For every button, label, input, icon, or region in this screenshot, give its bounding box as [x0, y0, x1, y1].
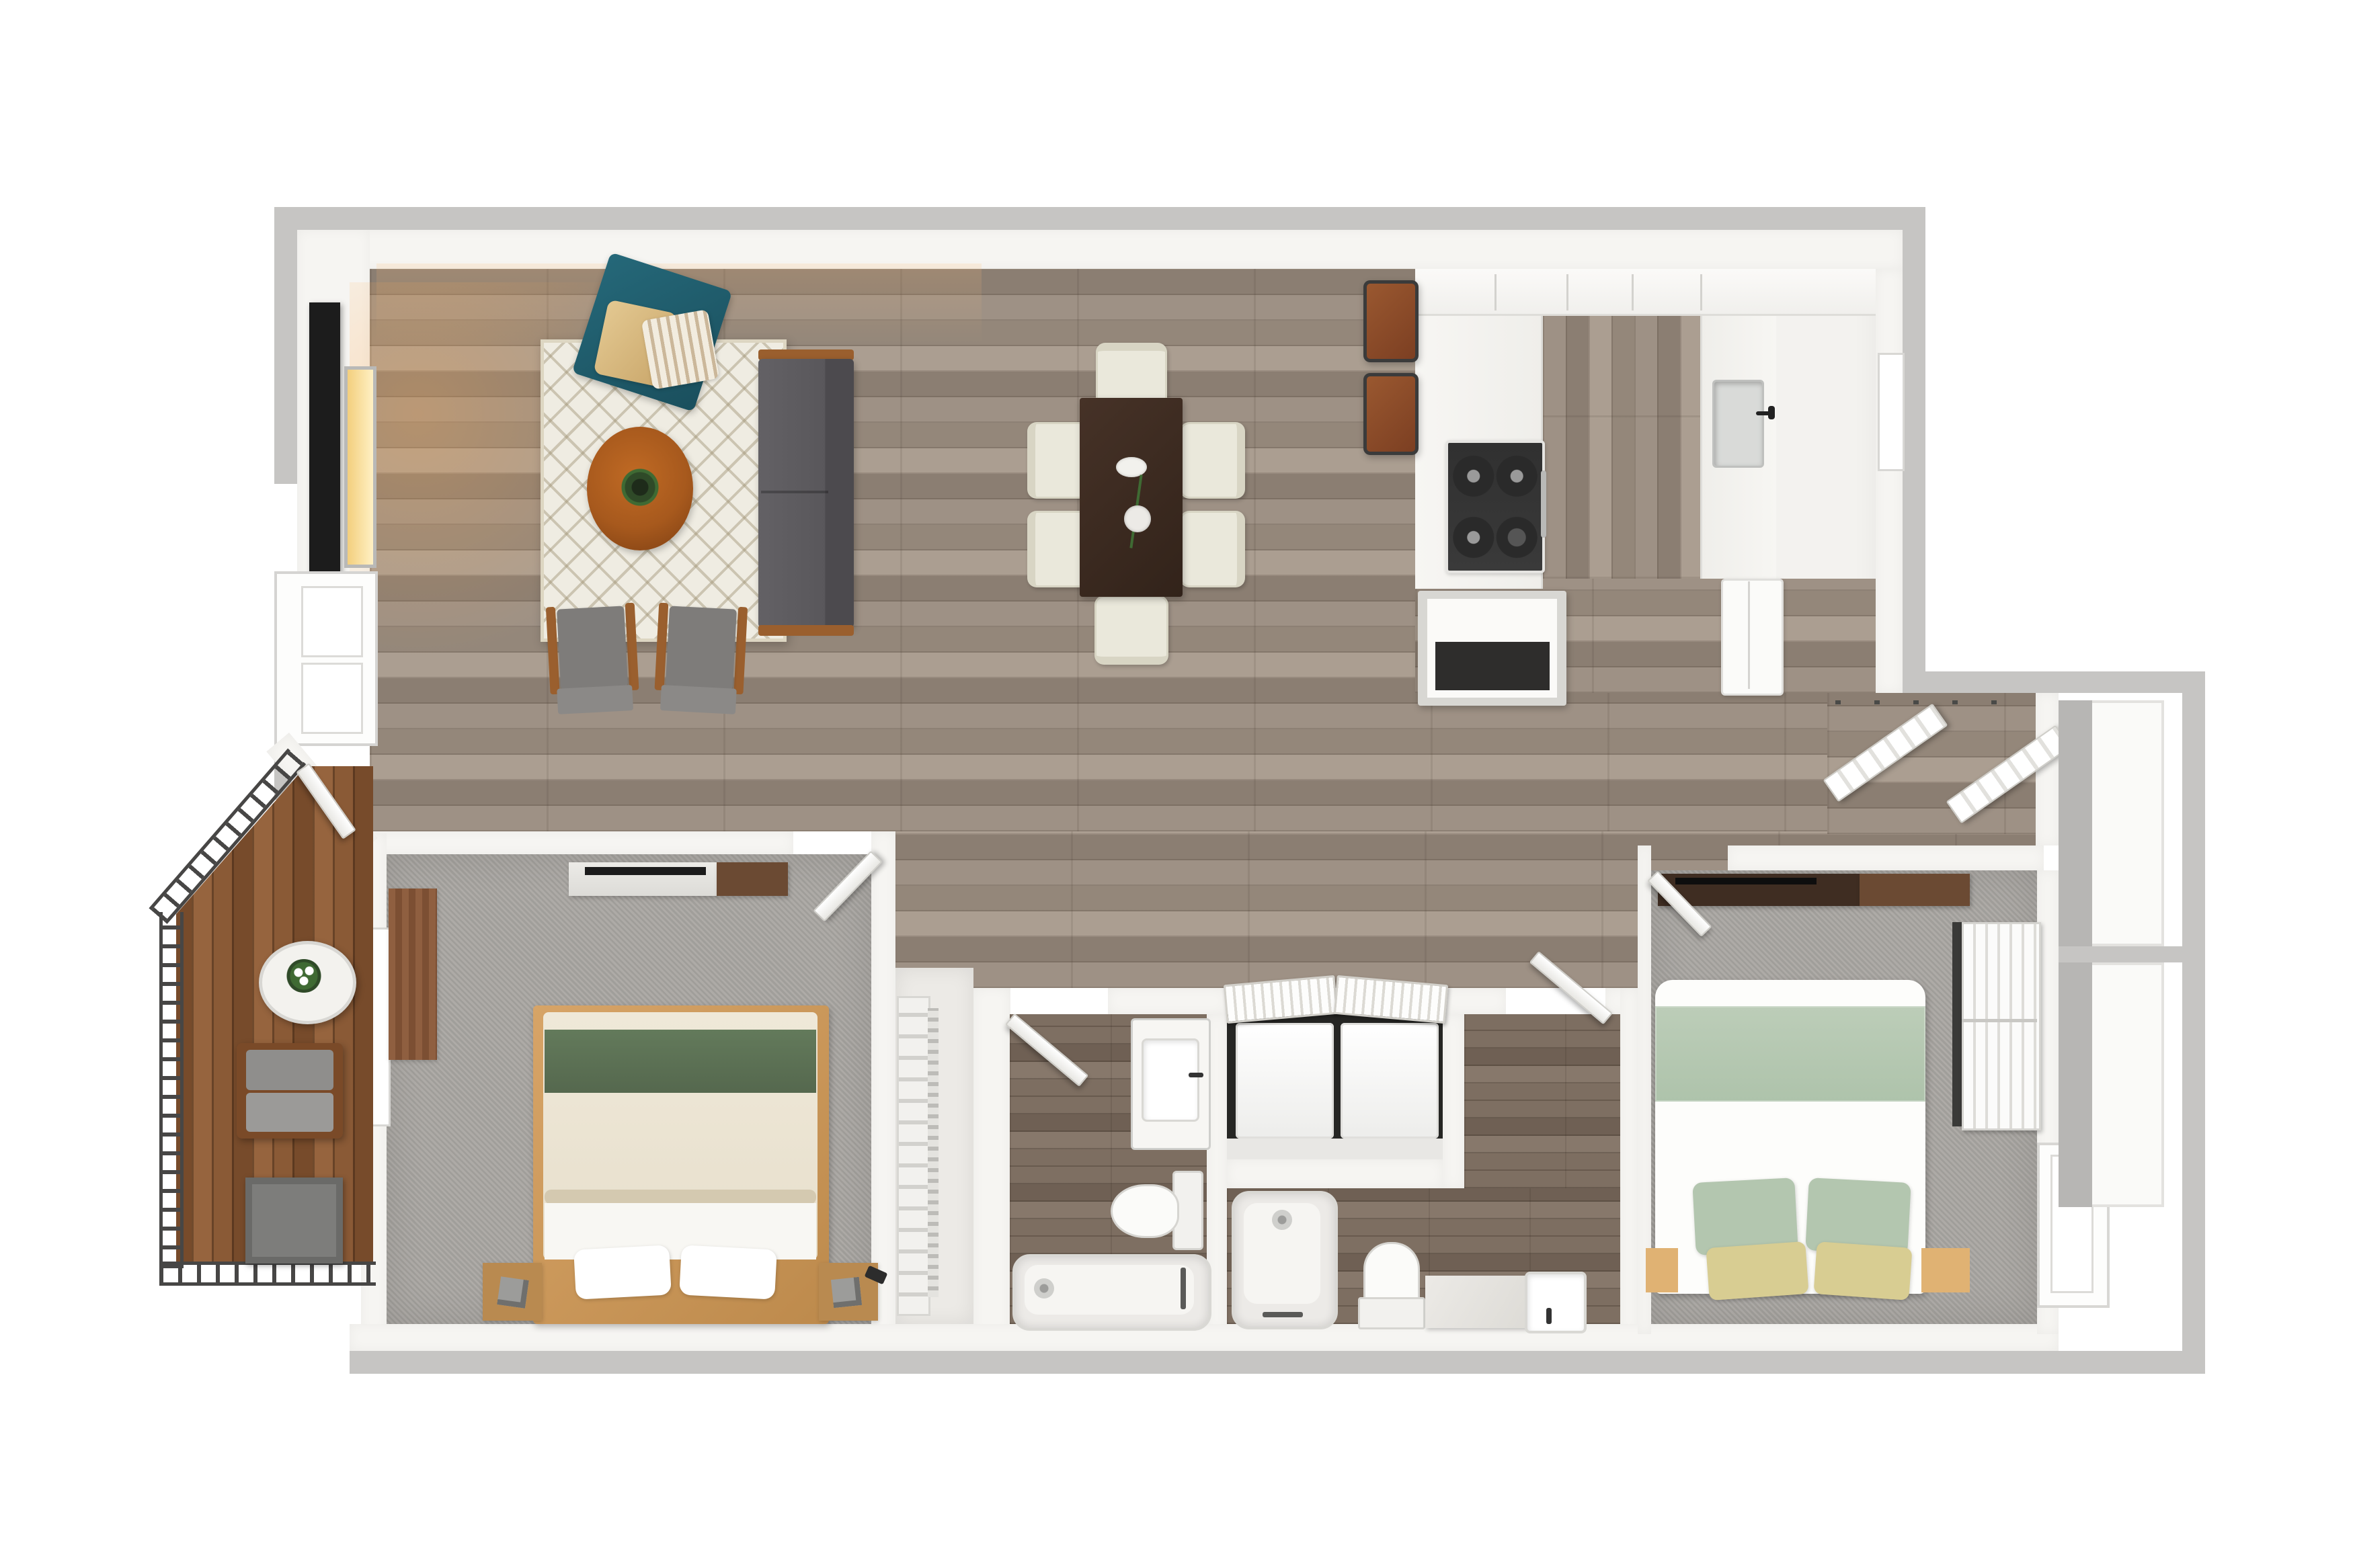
- kitchen-window: [1878, 353, 1905, 471]
- master-pillow-right: [679, 1245, 777, 1299]
- bathroom2-vanity-marble: [1425, 1276, 1527, 1328]
- bathroom1-tub-faucet: [1181, 1268, 1186, 1309]
- wall-corridor-south-b: [1108, 988, 1226, 1014]
- bedroom2-tv: [1675, 878, 1817, 884]
- patio-chair: [237, 1043, 343, 1139]
- bedroom2-closet-shelf-line: [1962, 1019, 2037, 1022]
- cabinet-divider-1: [1494, 274, 1497, 311]
- accent-chair-left-cushion: [557, 606, 628, 690]
- master-tv: [585, 867, 706, 875]
- bedroom2-sage-blanket: [1655, 1006, 1925, 1102]
- gray-sofa: [758, 359, 854, 628]
- entry-door-track: [1835, 700, 2030, 704]
- bathroom1-faucet: [1189, 1073, 1203, 1077]
- storage-cabinet-upper-depth: [2059, 700, 2092, 946]
- bar-stool-2: [1363, 373, 1419, 455]
- balcony-railing-left: [159, 912, 184, 1268]
- wall-north: [297, 230, 1903, 269]
- cooktop-handle: [1541, 470, 1546, 538]
- refrigerator: [1721, 579, 1784, 696]
- border-left-upper: [274, 207, 297, 484]
- bathroom2-tub-drain: [1272, 1210, 1292, 1230]
- closet-hanging-clothes: [928, 1008, 939, 1297]
- cabinet-divider-2: [1566, 274, 1568, 311]
- laundry-floor-strip: [1227, 1139, 1443, 1159]
- bathroom2-toilet-tank: [1358, 1297, 1425, 1329]
- washer: [1236, 1023, 1334, 1139]
- dryer: [1341, 1023, 1439, 1139]
- master-brown-art: [389, 889, 437, 1060]
- dining-chair-east-1: [1180, 422, 1245, 499]
- accent-chair-right-footrest: [660, 685, 737, 714]
- wall-lamp: [344, 366, 376, 568]
- wall-corridor-south-c: [1443, 988, 1506, 1014]
- sofa-cushion-seam: [761, 491, 828, 493]
- patio-chair-seat-cushion: [246, 1093, 333, 1132]
- bathroom2-faucet: [1546, 1308, 1552, 1324]
- dining-table: [1080, 398, 1183, 597]
- bathroom1-tub-drain: [1034, 1278, 1054, 1298]
- patio-chair-back-cushion: [246, 1050, 333, 1090]
- border-cabinet-separator: [2059, 946, 2182, 962]
- dining-centerpiece-dish: [1116, 457, 1147, 477]
- dining-chair-south: [1094, 595, 1168, 665]
- wall-master-east: [871, 831, 895, 1334]
- border-east: [2182, 671, 2205, 1374]
- cabinet-divider-4: [1700, 274, 1702, 311]
- west-window-pane-2: [301, 663, 363, 734]
- bathroom1-sink: [1142, 1038, 1199, 1122]
- storage-cabinet-lower-depth: [2059, 962, 2092, 1207]
- border-east-kitchen: [1903, 207, 1925, 693]
- accent-chair-left-footrest: [557, 685, 633, 714]
- wall-south: [350, 1324, 2059, 1351]
- west-window-pane-1: [301, 586, 363, 657]
- border-top: [274, 207, 1925, 230]
- bathroom2-tub-faucet: [1263, 1312, 1303, 1317]
- refrigerator-seam: [1748, 581, 1750, 689]
- wall-master-north-a: [361, 831, 793, 854]
- accent-chair-right: [653, 603, 748, 716]
- wall-east-kitchen: [1876, 269, 1903, 693]
- wall-bedroom2-north-b: [1728, 845, 2044, 870]
- balcony-storage-box: [245, 1178, 343, 1264]
- bedroom2-wood-block-left: [1646, 1248, 1678, 1292]
- sofa-wood-bottom: [758, 625, 854, 636]
- master-duvet-fold: [545, 1190, 816, 1204]
- tv-panel: [309, 302, 340, 598]
- dining-chair-east-2: [1180, 511, 1245, 587]
- bathroom1-toilet-bowl: [1111, 1184, 1179, 1238]
- accent-chair-right-cushion: [666, 606, 737, 690]
- wall-laundry-bath2: [1443, 1014, 1464, 1188]
- kitchen-island-open-shelf: [1435, 642, 1550, 690]
- nightstand-right-item: [831, 1277, 862, 1308]
- balcony: [151, 743, 387, 1327]
- border-bottom: [350, 1351, 2205, 1374]
- balcony-railing-bottom: [159, 1262, 376, 1286]
- bedroom2-closet-doors: [1962, 922, 2041, 1130]
- wall-laundry-south: [1227, 1159, 1443, 1188]
- bedroom2-pillow-yellow-right: [1813, 1241, 1912, 1301]
- bedroom2-closet-gap: [1952, 922, 1962, 1126]
- bedroom2-dresser-mid: [1860, 874, 1970, 906]
- bedroom2-pillow-yellow-left: [1706, 1241, 1808, 1301]
- wall-bath2-bedroom2: [1620, 988, 1638, 1334]
- kitchen-sink: [1712, 380, 1764, 468]
- kitchen-faucet-base: [1768, 406, 1775, 419]
- master-green-blanket: [545, 1030, 816, 1093]
- kitchen-counter-top: [1415, 269, 1876, 316]
- border-east-extension-top: [1925, 671, 2205, 693]
- bathroom2-floor-upper: [1464, 1014, 1620, 1188]
- kitchen-aisle-floor: [1543, 316, 1700, 579]
- potted-plant: [620, 467, 660, 507]
- closet-shelving: [897, 996, 930, 1316]
- cabinet-divider-3: [1632, 274, 1634, 311]
- floor-plan-canvas: [0, 0, 2353, 1568]
- bathroom2-sink: [1525, 1272, 1587, 1333]
- nightstand-left-item: [497, 1276, 528, 1308]
- dining-flower-vase: [1124, 505, 1151, 532]
- bedroom2-wood-block-right: [1921, 1248, 1970, 1292]
- accent-chair-left: [546, 603, 640, 716]
- striped-pillow: [641, 309, 720, 390]
- bar-stool-1: [1363, 280, 1419, 362]
- master-dresser: [717, 862, 788, 896]
- gas-cooktop: [1445, 440, 1545, 573]
- wall-alcove-east: [2036, 693, 2059, 845]
- patio-flowers: [286, 959, 322, 993]
- wall-closet-bath1: [973, 988, 1010, 1334]
- master-pillow-left: [573, 1245, 672, 1299]
